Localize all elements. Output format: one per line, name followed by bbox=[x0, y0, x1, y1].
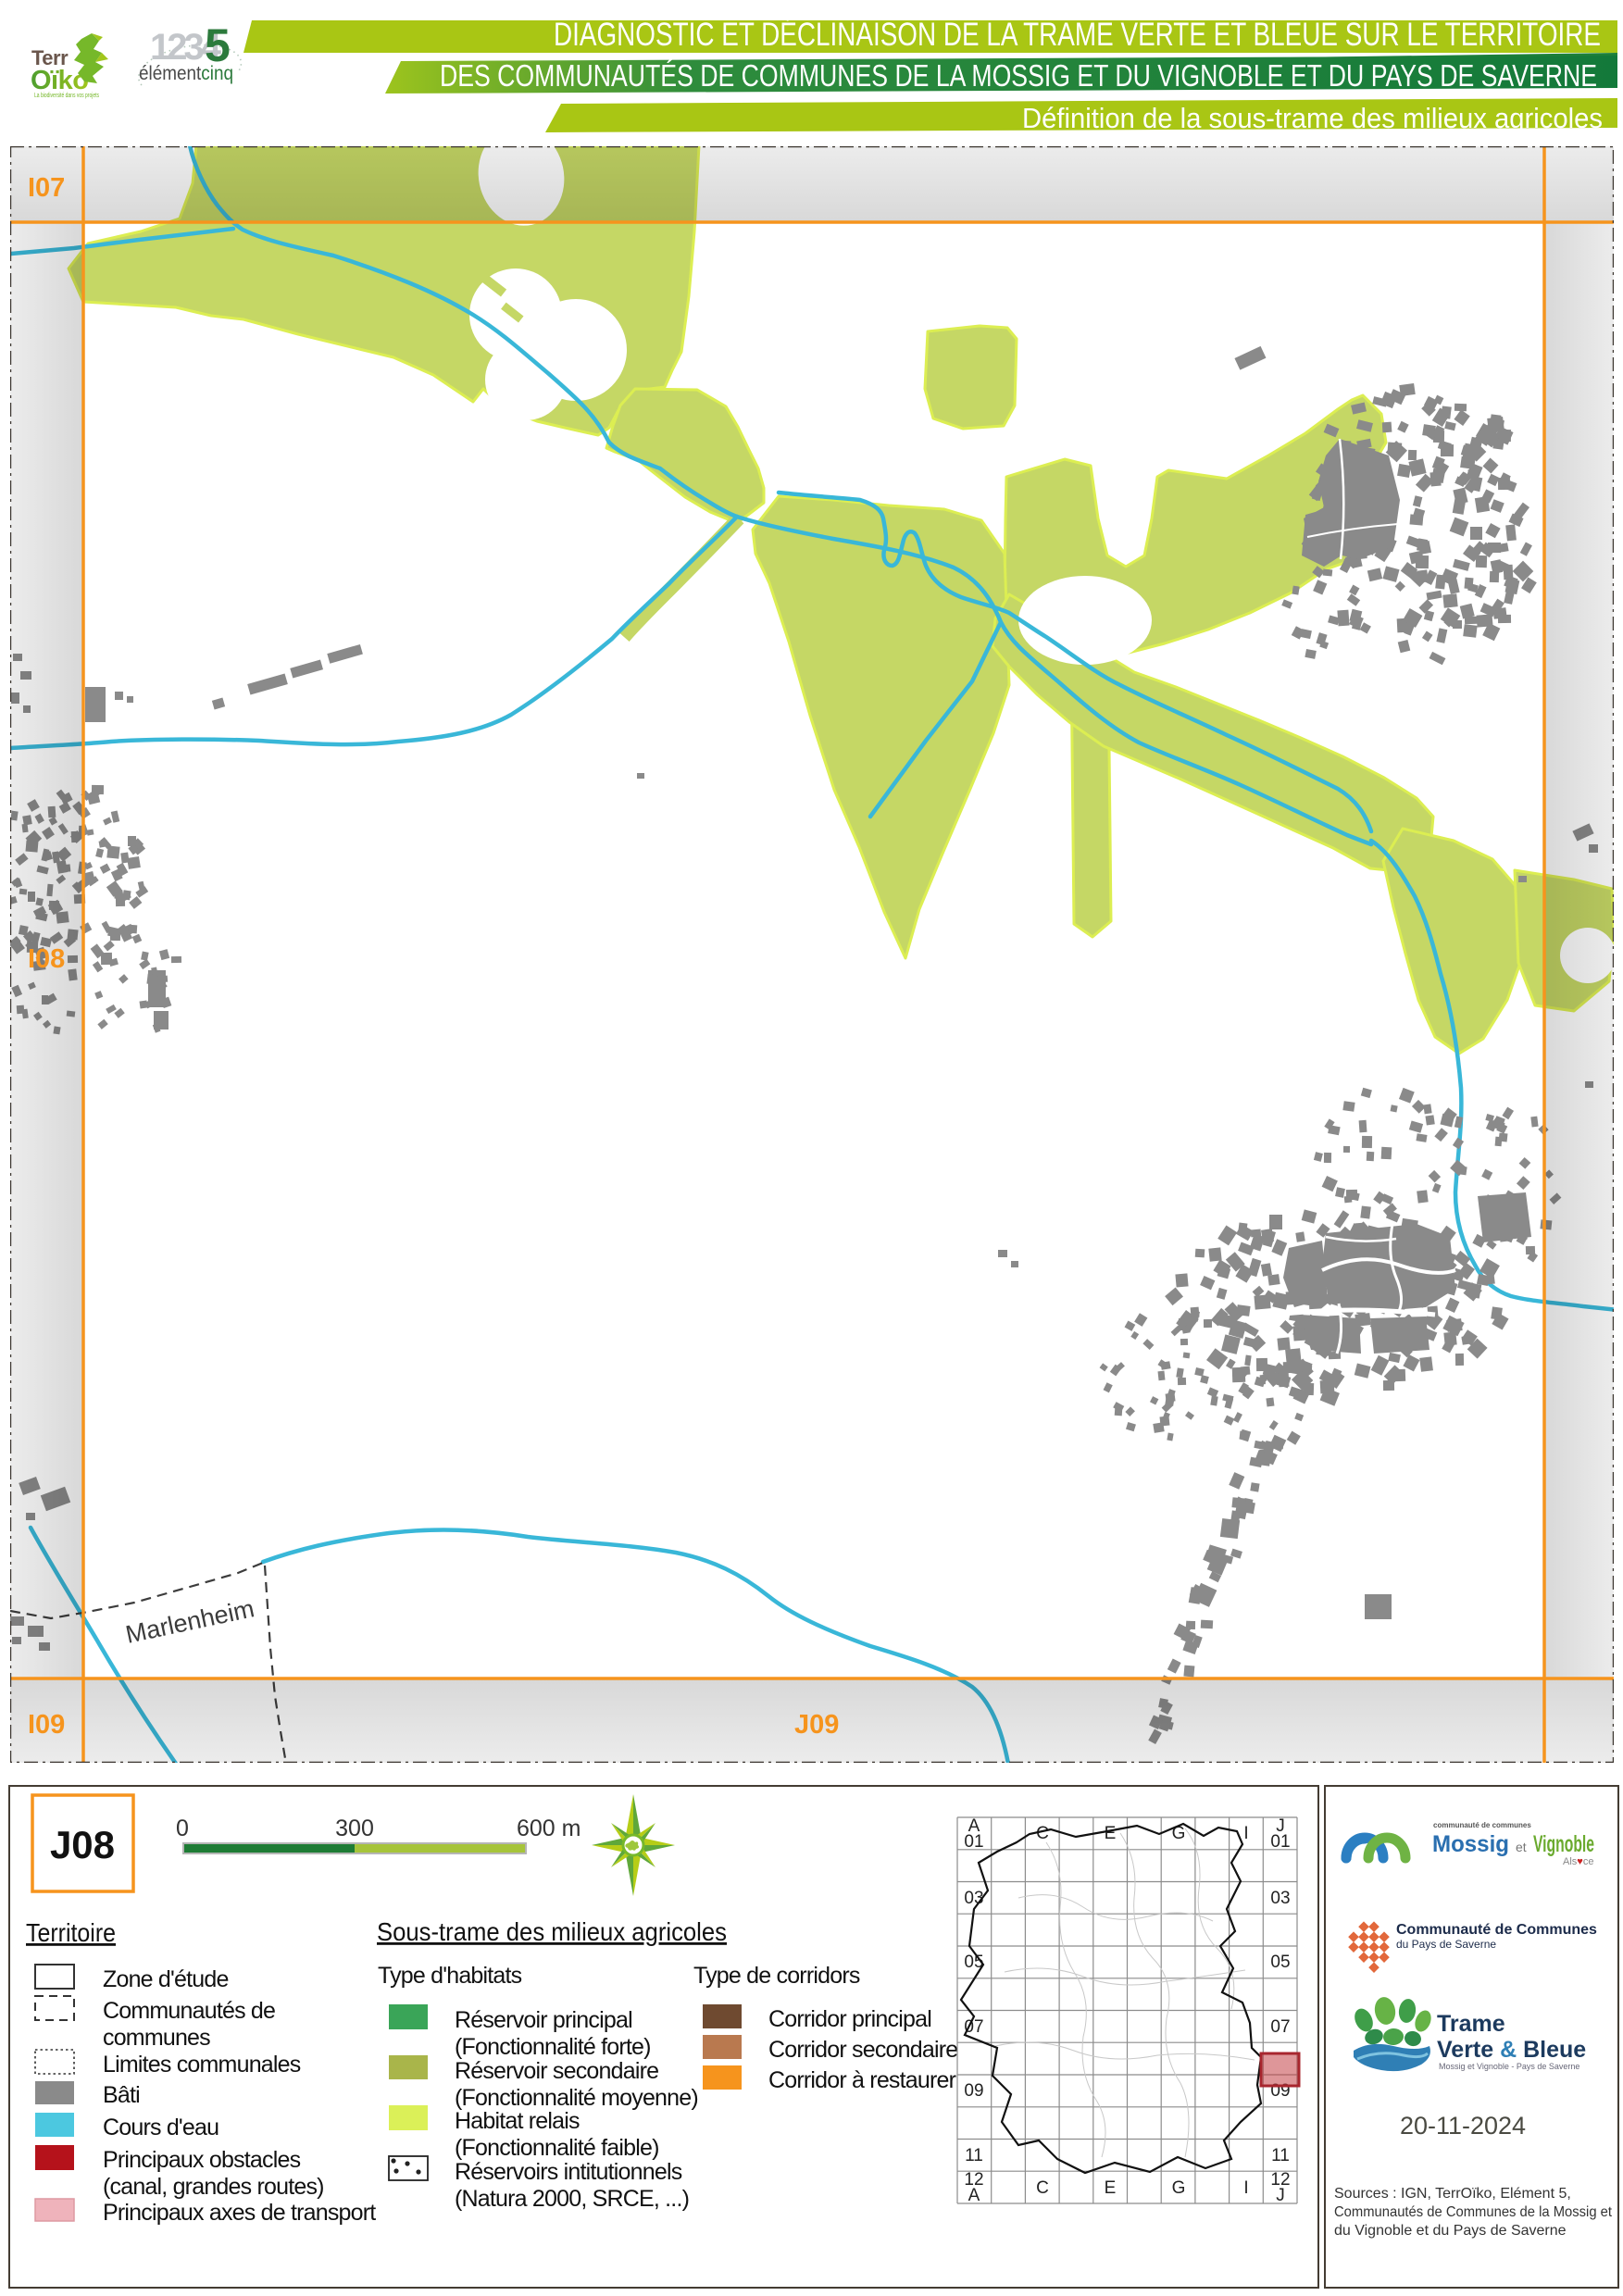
svg-text:Réservoir secondaire: Réservoir secondaire bbox=[455, 2058, 658, 2084]
svg-text:20-11-2024: 20-11-2024 bbox=[1400, 2112, 1526, 2140]
svg-text:Mossig et Vignoble - Pays de S: Mossig et Vignoble - Pays de Saverne bbox=[1439, 2062, 1579, 2071]
svg-text:I09: I09 bbox=[28, 1710, 65, 1740]
svg-text:élémentcinq: élémentcinq bbox=[139, 63, 233, 84]
svg-text:11: 11 bbox=[1271, 2146, 1290, 2165]
svg-text:Principaux obstacles: Principaux obstacles bbox=[103, 2147, 301, 2173]
svg-text:J: J bbox=[1276, 2186, 1285, 2205]
svg-text:Habitat relais: Habitat relais bbox=[455, 2108, 580, 2134]
svg-text:0: 0 bbox=[176, 1816, 189, 1841]
svg-text:03: 03 bbox=[1270, 1889, 1290, 1908]
svg-text:Als♥ce: Als♥ce bbox=[1563, 1856, 1593, 1867]
svg-text:du Pays de Saverne: du Pays de Saverne bbox=[1396, 1938, 1496, 1951]
svg-text:Zone d'étude: Zone d'étude bbox=[103, 1966, 229, 1992]
svg-text:600 m: 600 m bbox=[517, 1816, 581, 1841]
svg-text:Réservoir principal: Réservoir principal bbox=[455, 2007, 632, 2033]
svg-text:(canal, grandes routes): (canal, grandes routes) bbox=[103, 2174, 324, 2200]
svg-text:Vignoble: Vignoble bbox=[1533, 1831, 1594, 1857]
svg-text:11: 11 bbox=[965, 2146, 983, 2165]
svg-text:La biodiversité dans vos proje: La biodiversité dans vos projets bbox=[34, 93, 99, 99]
svg-text:communauté de communes: communauté de communes bbox=[1433, 1821, 1531, 1829]
svg-text:07: 07 bbox=[964, 2017, 983, 2037]
svg-text:Communautés de: Communautés de bbox=[103, 1998, 275, 2024]
svg-text:I08: I08 bbox=[28, 944, 65, 974]
svg-text:E: E bbox=[1105, 1824, 1117, 1843]
svg-text:DES COMMUNAUTÉS DE COMMUNES DE: DES COMMUNAUTÉS DE COMMUNES DE LA MOSSIG… bbox=[440, 58, 1597, 93]
svg-text:A: A bbox=[968, 2186, 980, 2205]
svg-text:Sous-trame des milieux agricol: Sous-trame des milieux agricoles bbox=[377, 1917, 727, 1946]
svg-text:05: 05 bbox=[1270, 1953, 1290, 1972]
svg-text:C: C bbox=[1036, 1824, 1049, 1843]
svg-text:09: 09 bbox=[964, 2081, 983, 2101]
svg-text:Territoire: Territoire bbox=[26, 1918, 116, 1947]
svg-text:C: C bbox=[1036, 2178, 1049, 2198]
svg-text:Sources : IGN, TerrOïko, Eléme: Sources : IGN, TerrOïko, Elément 5, bbox=[1334, 2186, 1571, 2202]
svg-text:Corridor principal: Corridor principal bbox=[768, 2006, 931, 2032]
svg-text:Réservoirs intitutionnels: Réservoirs intitutionnels bbox=[455, 2159, 682, 2185]
svg-text:Verte & Bleue: Verte & Bleue bbox=[1437, 2037, 1586, 2063]
svg-text:Communauté de Communes: Communauté de Communes bbox=[1396, 1922, 1597, 1938]
svg-text:Trame: Trame bbox=[1437, 2011, 1505, 2037]
svg-text:Corridor secondaire: Corridor secondaire bbox=[768, 2037, 957, 2063]
svg-text:01: 01 bbox=[964, 1832, 983, 1852]
svg-text:Communautés de Communes de la: Communautés de Communes de la Mossig et bbox=[1334, 2204, 1613, 2220]
svg-text:et: et bbox=[1516, 1840, 1527, 1854]
svg-text:300: 300 bbox=[335, 1816, 374, 1841]
svg-text:I: I bbox=[1243, 1824, 1248, 1843]
svg-text:E: E bbox=[1105, 2178, 1117, 2198]
svg-text:I07: I07 bbox=[28, 173, 65, 203]
svg-text:J08: J08 bbox=[50, 1823, 115, 1866]
svg-text:Type de corridors: Type de corridors bbox=[693, 1963, 860, 1989]
svg-text:07: 07 bbox=[1270, 2017, 1290, 2037]
svg-text:G: G bbox=[1172, 2178, 1186, 2198]
svg-text:Corridor à restaurer: Corridor à restaurer bbox=[768, 2067, 956, 2093]
svg-text:Principaux axes de transport: Principaux axes de transport bbox=[103, 2200, 376, 2226]
svg-text:Cours d'eau: Cours d'eau bbox=[103, 2115, 218, 2140]
svg-text:I: I bbox=[1243, 2178, 1248, 2198]
svg-text:(Fonctionnalité forte): (Fonctionnalité forte) bbox=[455, 2034, 651, 2060]
svg-text:du Vignoble et du Pays de Save: du Vignoble et du Pays de Saverne bbox=[1334, 2223, 1567, 2239]
svg-text:(Fonctionnalité faible): (Fonctionnalité faible) bbox=[455, 2135, 659, 2161]
svg-text:Mossig: Mossig bbox=[1432, 1831, 1509, 1857]
svg-text:(Natura 2000, SRCE, ...): (Natura 2000, SRCE, ...) bbox=[455, 2186, 689, 2212]
svg-text:Définition de la sous-trame de: Définition de la sous-trame des milieux … bbox=[1022, 102, 1603, 134]
svg-text:Bâti: Bâti bbox=[103, 2082, 140, 2108]
svg-text:(Fonctionnalité moyenne): (Fonctionnalité moyenne) bbox=[455, 2085, 698, 2111]
svg-text:Type d'habitats: Type d'habitats bbox=[378, 1963, 522, 1989]
svg-text:Limites communales: Limites communales bbox=[103, 2052, 301, 2078]
svg-text:01: 01 bbox=[1270, 1832, 1290, 1852]
svg-text:DIAGNOSTIC ET DÉCLINAISON DE L: DIAGNOSTIC ET DÉCLINAISON DE LA TRAME VE… bbox=[554, 17, 1601, 53]
svg-text:J09: J09 bbox=[794, 1710, 839, 1740]
svg-text:communes: communes bbox=[103, 2025, 210, 2051]
svg-text:Oïko: Oïko bbox=[31, 66, 88, 95]
